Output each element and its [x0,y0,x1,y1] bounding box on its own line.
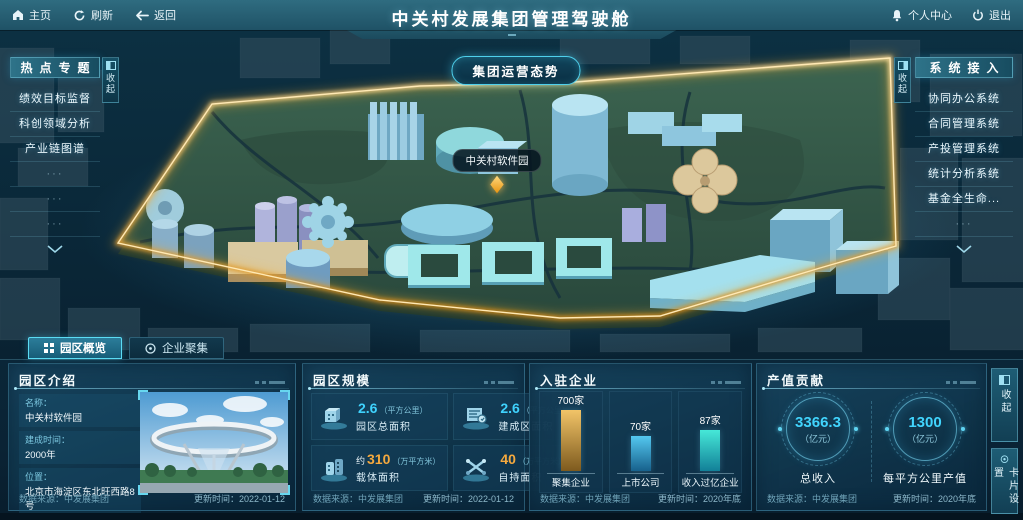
panel-header-decoration [484,381,514,384]
update-time: 更新时间：2020年底 [893,492,976,505]
collapse-panel-icon [898,61,908,70]
panel-header: 园区规模 [303,364,524,389]
map-area: 集团运营态势 中关村软件园 热点专题 绩效目标监督 科创领域分析 产业链图谱 ·… [0,30,1023,360]
bar-baseline [547,473,595,474]
panel-footer: 数据来源：中发展集团 更新时间：2020年底 [767,492,976,505]
panel-header: 园区介绍 [9,364,295,389]
data-source: 数据来源：中发展集团 [767,492,857,505]
park-area-icon [319,402,349,430]
bar-category-label: 上市公司 [610,475,672,489]
system-item[interactable]: 合同管理系统 [915,112,1013,137]
topbar-right-group: 个人中心 退出 [891,7,1011,23]
system-access-list: 协同办公系统 合同管理系统 产投管理系统 统计分析系统 基金全生命... ··· [915,87,1013,237]
topbar-notch-decoration [347,30,677,39]
system-item[interactable]: 基金全生命... [915,187,1013,212]
home-label: 主页 [29,7,51,23]
output-gauges: 3366.3 （亿元） 总收入 1300 （亿元） 每平方公里产值 [765,391,978,492]
panel-header: 产值贡献 [757,364,986,389]
refresh-button[interactable]: 刷新 [73,7,113,23]
field-value: 2000年 [25,447,135,461]
gauge-dot [778,427,782,431]
hot-topic-placeholder: ··· [10,212,100,237]
park-photo-image [140,392,288,493]
system-access-title: 系统接入 [915,57,1013,78]
group-operation-badge[interactable]: 集团运营态势 [451,56,580,85]
panel-footer: 数据来源：中发展集团 更新时间：2022-01-12 [313,492,514,505]
stat-prefix: 约 [356,454,365,467]
chevron-down-icon[interactable] [956,245,972,254]
hot-topics-collapse-button[interactable]: 收起 [102,57,119,103]
buildings-icon [319,454,349,482]
panel-title: 产值贡献 [767,374,825,388]
back-button[interactable]: 返回 [135,7,176,23]
system-access-collapse-button[interactable]: 收起 [894,57,911,103]
collapse-panel-icon [106,61,116,70]
tab-label: 企业聚集 [162,340,208,356]
system-item[interactable]: 协同办公系统 [915,87,1013,112]
stat-label: 载体面积 [356,469,440,484]
stat-value: 2.6 [358,400,377,416]
stat-value: 40 [500,451,516,467]
panels-collapse-button[interactable]: 收起 [991,368,1018,442]
gauge-ring: 3366.3 （亿元） [786,397,850,461]
topbar: 主页 刷新 返回 中关村发展集团管理驾驶舱 个人中心 退出 [0,0,1023,30]
hot-topic-placeholder: ··· [10,187,100,212]
field-label: 位置： [25,470,135,483]
field-built-time: 建成时间： 2000年 [19,431,141,464]
collapse-label: 收起 [997,389,1012,415]
gauge-dot [961,427,965,431]
user-center-button[interactable]: 个人中心 [891,7,952,23]
bell-icon [891,9,903,22]
hot-topic-placeholder: ··· [10,162,100,187]
hot-topic-item[interactable]: 绩效目标监督 [10,87,100,112]
gauge-label: 总收入 [800,470,836,486]
panel-title: 园区规模 [313,374,371,388]
panel-header: 入驻企业 [530,364,751,389]
stat-value: 310 [367,451,390,467]
grid-icon [44,343,54,353]
collapse-panel-icon [999,375,1010,385]
gauge-dot [854,427,858,431]
update-time: 更新时间：2022-01-12 [194,492,285,505]
park-photo [140,392,288,493]
stat-total-area: 2.6 （平方公里） 园区总面积 [311,393,448,440]
tab-park-overview[interactable]: 园区概览 [28,337,122,359]
home-button[interactable]: 主页 [12,7,51,23]
bar-column: 87家 收入过亿企业 [678,391,742,493]
stat-value: 2.6 [500,400,519,416]
collapse-label: 收起 [104,73,117,95]
data-source: 数据来源：中发展集团 [540,492,630,505]
page-title: 中关村发展集团管理驾驶舱 [392,5,632,30]
output-value-panel: 产值贡献 3366.3 （亿元） 总收入 1300 （亿元） 每平方 [756,363,987,511]
bar-baseline [686,473,734,474]
photo-frame-corner [280,390,290,400]
back-arrow-icon [135,10,149,21]
gauge-value: 1300 [908,414,941,431]
bottom-edge-decoration [0,513,1023,520]
card-settings-button[interactable]: 卡片设置 [991,448,1018,514]
power-icon [972,9,984,21]
system-item[interactable]: 统计分析系统 [915,162,1013,187]
settings-icon [999,455,1010,463]
update-time: 更新时间：2020年底 [658,492,741,505]
logout-button[interactable]: 退出 [972,7,1011,23]
dashboard: 主页 刷新 返回 中关村发展集团管理驾驶舱 个人中心 退出 [0,0,1023,520]
topbar-left-group: 主页 刷新 返回 [12,7,176,23]
refresh-icon [73,9,86,22]
bar-category-label: 收入过亿企业 [679,475,741,489]
home-icon [12,9,24,21]
disc-icon [145,343,156,354]
photo-frame-corner [138,390,148,400]
resident-enterprises-panel: 入驻企业 700家 聚集企业 70家 上市公司 87家 收入过亿企业 [529,363,752,511]
hot-topics-list: 绩效目标监督 科创领域分析 产业链图谱 ··· ··· ··· [10,87,100,237]
hot-topic-item[interactable]: 产业链图谱 [10,137,100,162]
panel-footer: 数据来源：中发展集团 更新时间：2020年底 [540,492,741,505]
blueprint-icon [461,402,491,430]
field-label: 名称： [25,396,135,409]
bar-category-label: 聚集企业 [540,475,602,489]
hot-topic-item[interactable]: 科创领域分析 [10,112,100,137]
crossed-arrows-icon [461,454,491,482]
panel-header-decoration [711,381,741,384]
scale-stats-grid: 2.6 （平方公里） 园区总面积 2.6 （平方公里） [311,393,516,491]
bar-baseline [617,473,665,474]
field-value: 中关村软件园 [25,410,135,424]
gauge-unit: （亿元） [800,432,836,445]
logout-label: 退出 [989,7,1011,23]
bar-clustered-enterprises [561,410,581,471]
panel-header-decoration [946,381,976,384]
card-settings-label: 卡片设置 [990,467,1020,507]
user-center-label: 个人中心 [908,7,952,23]
gauge-unit: （亿元） [907,432,943,445]
data-source: 数据来源：中发展集团 [19,492,109,505]
update-time: 更新时间：2022-01-12 [423,492,514,505]
gauge-dot [885,427,889,431]
tab-enterprise-cluster[interactable]: 企业聚集 [129,337,224,359]
stat-unit: （万平方米） [392,456,440,467]
stat-carrier-area: 约 310 （万平方米） 载体面积 [311,445,448,492]
system-access-panel: 系统接入 协同办公系统 合同管理系统 产投管理系统 统计分析系统 基金全生命..… [915,57,1013,254]
bar-value-label: 700家 [557,392,584,407]
panel-title: 入驻企业 [540,374,598,388]
gauge-output-per-sqkm: 1300 （亿元） 每平方公里产值 [872,391,978,492]
tab-label: 园区概览 [60,340,106,356]
bar-value-label: 87家 [700,412,721,427]
hot-topics-title: 热点专题 [10,57,100,78]
stat-label: 园区总面积 [356,418,427,433]
panel-footer: 数据来源：中发展集团 更新时间：2022-01-12 [19,492,285,505]
gauge-value: 3366.3 [795,414,841,431]
map-marker[interactable]: 中关村软件园 [453,149,542,190]
collapse-label: 收起 [896,73,909,95]
data-source: 数据来源：中发展集团 [313,492,403,505]
field-name: 名称： 中关村软件园 [19,394,141,427]
bar-value-label: 70家 [630,418,651,433]
park-intro-panel: 园区介绍 名称： 中关村软件园 建成时间： 2000年 位置： 北京市海淀区东北… [8,363,296,511]
map-marker-label: 中关村软件园 [453,149,542,172]
gauge-label: 每平方公里产值 [883,470,967,486]
bar-revenue-over-100m [700,430,720,471]
back-label: 返回 [154,7,176,23]
bar-listed-companies [631,436,651,471]
refresh-label: 刷新 [91,7,113,23]
panel-title: 园区介绍 [19,374,77,388]
panel-header-decoration [255,381,285,384]
system-item[interactable]: 产投管理系统 [915,137,1013,162]
bar-column: 700家 聚集企业 [539,391,603,493]
enterprise-bar-chart: 700家 聚集企业 70家 上市公司 87家 收入过亿企业 [539,391,742,493]
park-scale-panel: 园区规模 2.6 （平方公里） 园区总面积 [302,363,525,511]
stat-unit: （平方公里） [379,405,427,416]
hot-topics-panel: 热点专题 绩效目标监督 科创领域分析 产业链图谱 ··· ··· ··· [10,57,100,254]
bar-column: 70家 上市公司 [609,391,673,493]
gauge-total-revenue: 3366.3 （亿元） 总收入 [765,391,871,492]
bottom-tabs: 园区概览 企业聚集 [28,337,224,359]
system-item-placeholder: ··· [915,212,1013,237]
field-label: 建成时间： [25,433,135,446]
chevron-down-icon[interactable] [47,245,63,254]
gauge-ring: 1300 （亿元） [893,397,957,461]
